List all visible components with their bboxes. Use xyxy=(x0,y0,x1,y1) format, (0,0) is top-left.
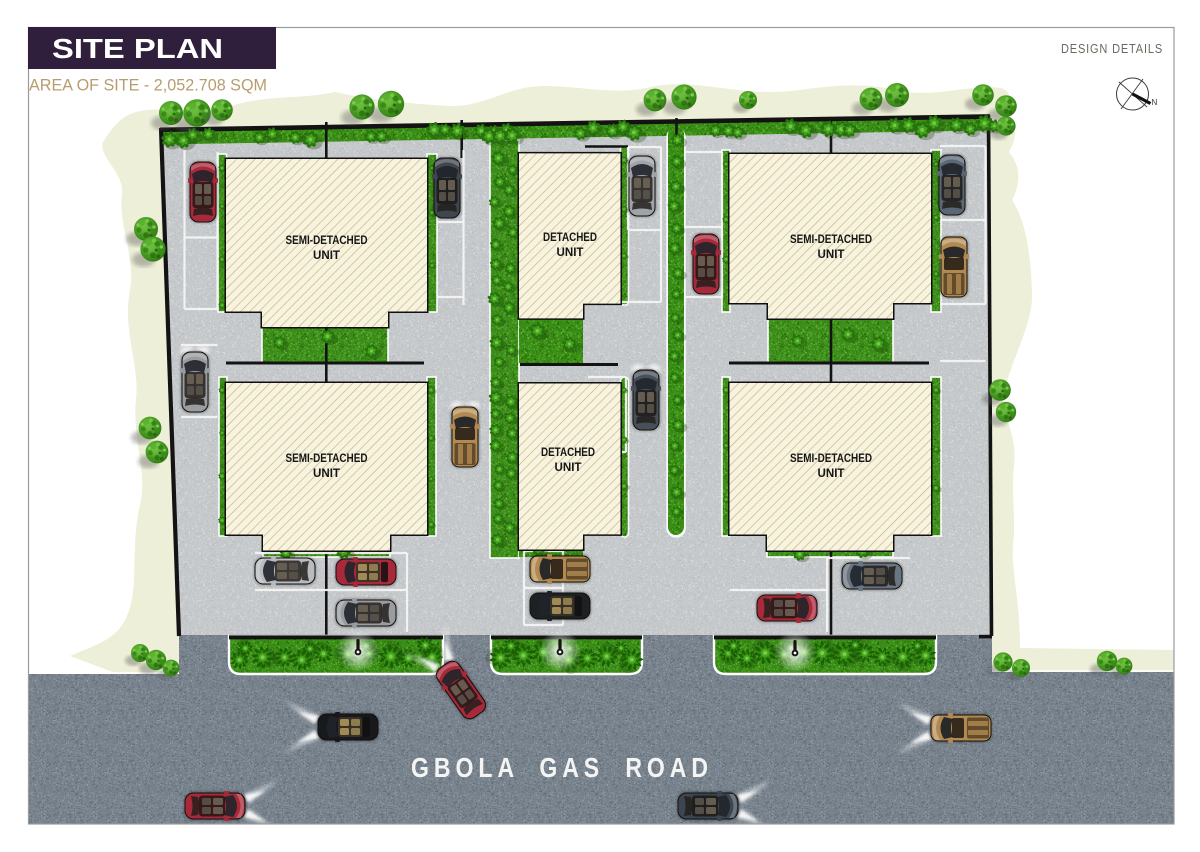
svg-text:DETACHED: DETACHED xyxy=(543,231,597,244)
svg-text:SEMI-DETACHED: SEMI-DETACHED xyxy=(790,452,872,465)
svg-text:AREA OF SITE - 2,052.708 SQM: AREA OF SITE - 2,052.708 SQM xyxy=(29,76,267,95)
svg-text:SEMI-DETACHED: SEMI-DETACHED xyxy=(790,233,872,246)
svg-text:SEMI-DETACHED: SEMI-DETACHED xyxy=(286,234,368,247)
svg-text:N: N xyxy=(1152,98,1158,107)
svg-text:GBOLA GAS ROAD: GBOLA GAS ROAD xyxy=(411,752,713,783)
svg-text:DESIGN DETAILS: DESIGN DETAILS xyxy=(1061,41,1163,56)
svg-text:DETACHED: DETACHED xyxy=(541,446,595,459)
svg-text:UNIT: UNIT xyxy=(555,461,582,474)
svg-text:UNIT: UNIT xyxy=(313,249,340,262)
svg-text:UNIT: UNIT xyxy=(818,248,845,261)
svg-text:UNIT: UNIT xyxy=(313,467,340,480)
svg-text:SITE PLAN: SITE PLAN xyxy=(52,33,223,64)
svg-text:UNIT: UNIT xyxy=(818,467,845,480)
svg-text:UNIT: UNIT xyxy=(557,246,584,259)
svg-text:SEMI-DETACHED: SEMI-DETACHED xyxy=(286,452,368,465)
